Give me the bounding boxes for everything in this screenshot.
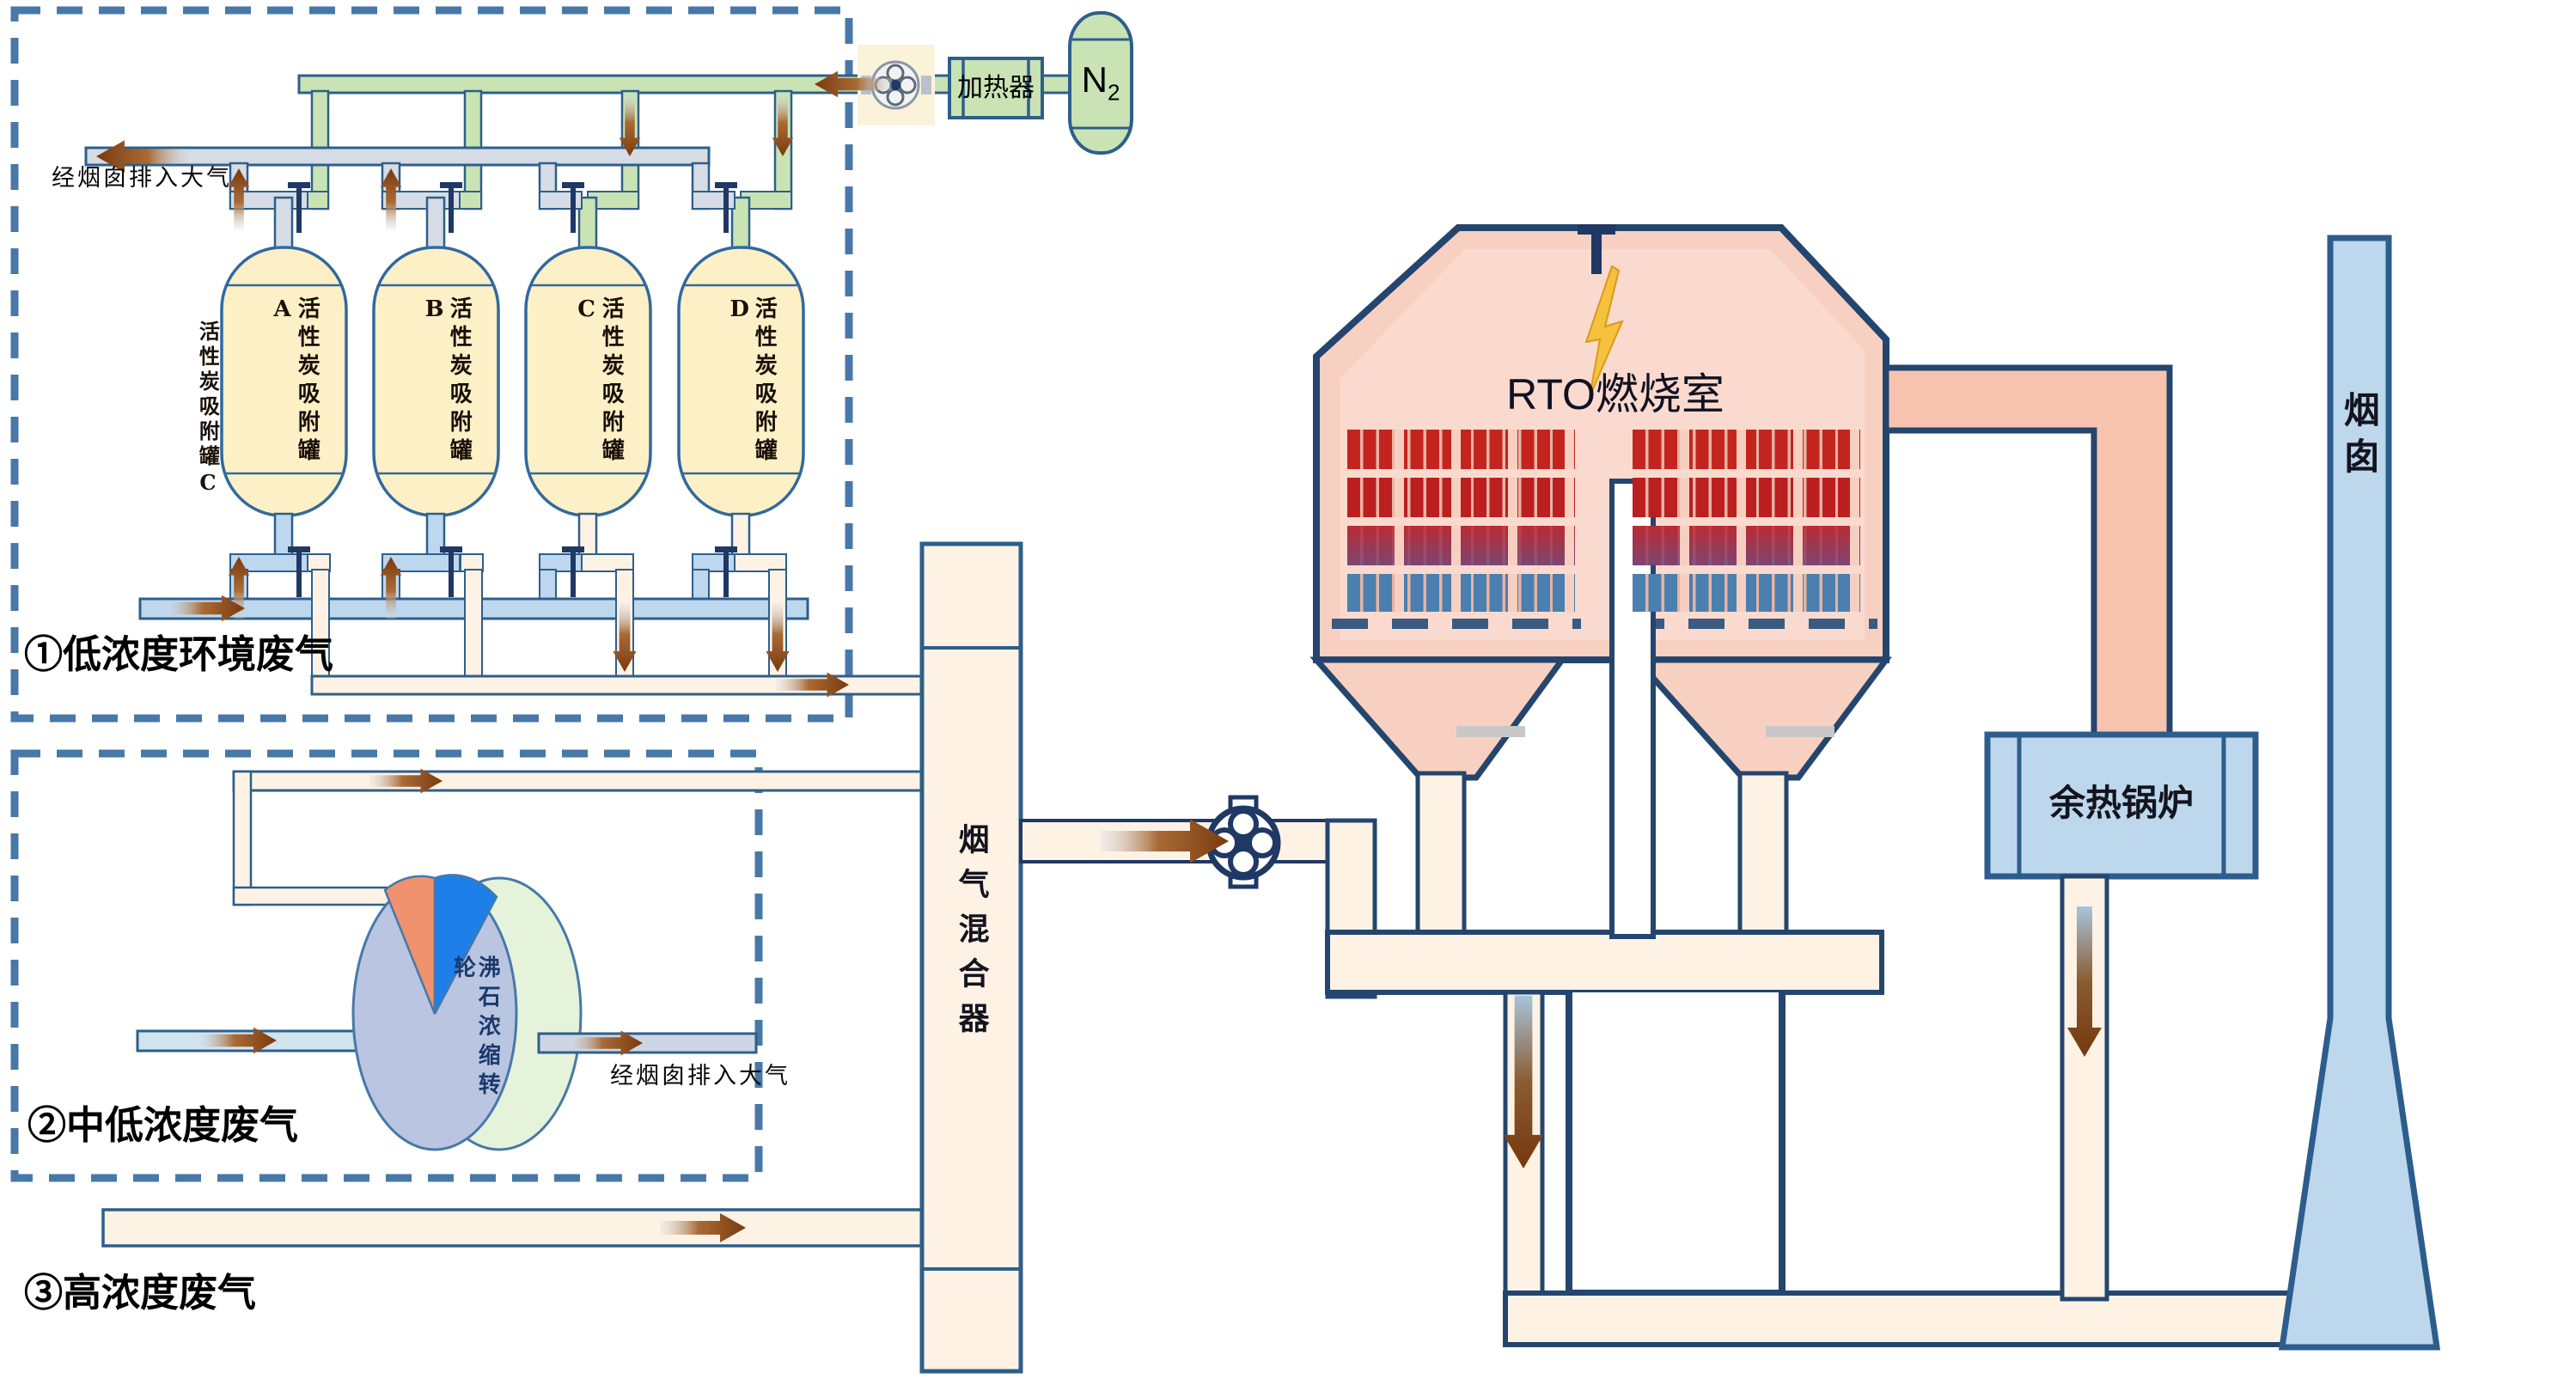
external-tank-label: 活性炭吸附罐C: [196, 320, 218, 505]
process-diagram: 经烟囱排入大气 ①低浓度环境废气 活性炭吸附罐C 活性炭吸附罐A 活性炭吸附罐B…: [0, 0, 2576, 1379]
valve-icon: [288, 546, 310, 552]
bottom-valves: [288, 546, 737, 597]
chimney-label: 烟囱: [2339, 391, 2378, 511]
valve-icon: [715, 182, 737, 188]
bottom-flue-pipe: [1505, 1293, 2382, 1345]
valve-stem: [723, 188, 729, 233]
valve-icon: [562, 182, 584, 188]
hopper-vent-right: [1766, 726, 1834, 737]
n2-subscript: 2: [1108, 79, 1120, 105]
valve-stem: [571, 552, 576, 597]
top-valves: [288, 182, 737, 233]
valve-icon: [562, 546, 584, 552]
tank-b-label: 活性炭吸附罐B: [422, 296, 471, 494]
rto-media-right-row2: [1633, 478, 1860, 517]
rotor-label: 沸石浓缩转轮: [450, 955, 499, 1127]
igniter-stem: [1591, 224, 1602, 274]
rotor-desorb-pipe-top: [234, 772, 922, 790]
valve-icon: [288, 182, 310, 188]
rto-inner-u-duct: [1569, 992, 1782, 1293]
valve-icon: [440, 182, 462, 188]
section-mid-label: ②中低浓度废气: [27, 1104, 298, 1147]
inlet-stub-c: [540, 570, 556, 601]
rto-bottom-duct: [1328, 932, 1882, 992]
valve-stem: [449, 552, 454, 597]
mixer-label: 烟气混合器: [954, 823, 988, 1081]
exhaust-to-atmosphere-label-2: 经烟囱排入大气: [610, 1064, 791, 1089]
rto-label: RTO燃烧室: [1426, 371, 1804, 418]
valve-stem: [296, 552, 302, 597]
diagram-shapes: [0, 0, 2576, 1379]
n2-tank-label: N2: [1070, 60, 1132, 105]
rto-media-right-row3: [1633, 526, 1860, 565]
hopper-outlet-right: [1740, 773, 1786, 937]
n2-stub-b: [458, 192, 481, 209]
valve-stem: [296, 188, 302, 233]
tank-a-label: 活性炭吸附罐A: [270, 296, 319, 494]
valve-icon: [440, 546, 462, 552]
rto-media-left-row3: [1347, 526, 1575, 565]
desorb-drop-b: [465, 570, 482, 681]
valve-stem: [449, 188, 454, 233]
section-low-label: ①低浓度环境废气: [24, 633, 333, 676]
hopper-outlet-left: [1418, 773, 1464, 937]
tank-a-top-nozzle: [275, 198, 292, 249]
rto-media-right-row4: [1633, 574, 1860, 612]
rto-media-left-row4: [1347, 574, 1575, 612]
high-conc-pipe: [103, 1210, 922, 1246]
valve-stem: [571, 188, 576, 233]
inlet-stub-d: [693, 570, 709, 601]
boiler-label: 余热锅炉: [1987, 784, 2256, 823]
rto-media-left-row1: [1347, 430, 1575, 469]
tank-b-top-nozzle: [427, 198, 444, 249]
hopper-vent-left: [1456, 726, 1525, 737]
rto-media-right-row1: [1633, 430, 1860, 469]
valve-icon: [715, 546, 737, 552]
tank-d-label: 活性炭吸附罐D: [727, 296, 776, 494]
exhaust-to-atmosphere-label-1: 经烟囱排入大气: [52, 166, 232, 192]
section-high-label: ③高浓度废气: [24, 1272, 256, 1315]
n2-symbol: N: [1082, 59, 1108, 100]
heater-label: 加热器: [949, 74, 1042, 102]
tank-c-label: 活性炭吸附罐C: [574, 296, 623, 494]
rto-hopper-right: [1637, 660, 1886, 778]
valve-stem: [723, 552, 729, 597]
rotor-desorb-pipe-vert: [234, 772, 251, 905]
rto-hot-outlet-pipe: [1886, 368, 2170, 737]
fan-tab-right: [921, 76, 931, 95]
rto-hopper-left: [1316, 660, 1562, 778]
rto-media-left-row2: [1347, 478, 1575, 517]
